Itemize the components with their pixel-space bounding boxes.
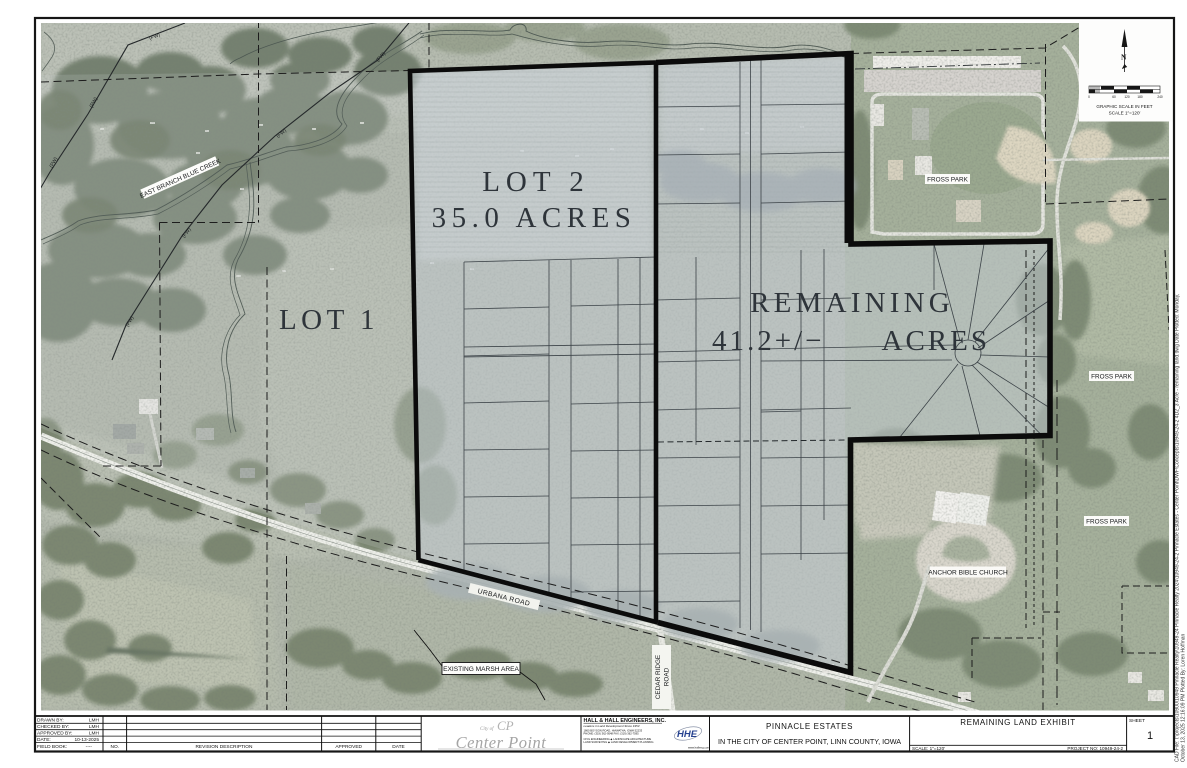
- svg-text:FROSS PARK: FROSS PARK: [927, 177, 968, 184]
- svg-text:DRAWN BY:: DRAWN BY:: [37, 718, 64, 724]
- svg-text:REVISION DESCRIPTION: REVISION DESCRIPTION: [195, 744, 253, 750]
- svg-text:ROAD: ROAD: [664, 667, 671, 686]
- svg-text:CHECKED BY:: CHECKED BY:: [37, 724, 69, 730]
- svg-text:HHE: HHE: [677, 729, 698, 740]
- svg-text:City of: City of: [480, 727, 494, 732]
- svg-text:October 13, 2025 12:16:09 PM: October 13, 2025 12:16:09 PM Plotted By:…: [1181, 633, 1187, 762]
- svg-text:APPROVED: APPROVED: [335, 744, 362, 750]
- svg-text:N: N: [1121, 53, 1127, 62]
- svg-text:REMAINING: REMAINING: [750, 287, 954, 319]
- svg-text:SCALE 1″=120′: SCALE 1″=120′: [1109, 111, 1141, 116]
- svg-text:LMH: LMH: [89, 718, 100, 724]
- svg-text:LMH: LMH: [89, 724, 100, 730]
- svg-text:FROSS PARK: FROSS PARK: [1086, 519, 1127, 526]
- svg-text:LOT 2: LOT 2: [482, 166, 590, 198]
- svg-text:PROJECT NO: 10949-24-2: PROJECT NO: 10949-24-2: [1067, 746, 1123, 751]
- svg-text:SHEET: SHEET: [1129, 718, 1145, 724]
- svg-text:ANCHOR BIBLE CHURCH: ANCHOR BIBLE CHURCH: [928, 570, 1008, 577]
- svg-text:IN THE CITY OF CENTER POINT, L: IN THE CITY OF CENTER POINT, LINN COUNTY…: [718, 737, 901, 746]
- svg-text:REMAINING LAND EXHIBIT: REMAINING LAND EXHIBIT: [960, 718, 1075, 727]
- svg-text:35.0 ACRES: 35.0 ACRES: [432, 202, 637, 234]
- svg-text:GRAPHIC SCALE IN FEET: GRAPHIC SCALE IN FEET: [1096, 104, 1152, 109]
- svg-text:LMH: LMH: [89, 731, 100, 737]
- svg-text:APPROVED BY:: APPROVED BY:: [37, 731, 72, 737]
- svg-text:FROSS PARK: FROSS PARK: [1091, 374, 1132, 381]
- svg-text:Leaders in Land Development Si: Leaders in Land Development Since 1953: [584, 724, 640, 728]
- svg-text:PHONE: (319) 362-9548 FAX: (3: PHONE: (319) 362-9548 FAX: (319) 362-759…: [584, 732, 640, 736]
- svg-text:www.halleng.com: www.halleng.com: [688, 745, 710, 749]
- svg-text:60: 60: [1112, 95, 1116, 99]
- svg-text:41.2+/−: 41.2+/−: [712, 325, 825, 357]
- svg-text:1: 1: [1147, 730, 1153, 742]
- svg-text:0: 0: [1088, 95, 1090, 99]
- svg-text:----: ----: [86, 745, 93, 750]
- svg-text:PINNACLE ESTATES: PINNACLE ESTATES: [766, 722, 853, 731]
- svg-text:DATE:: DATE:: [37, 737, 51, 743]
- svg-text:EXISTING MARSH AREA: EXISTING MARSH AREA: [443, 666, 519, 673]
- svg-text:120: 120: [1124, 95, 1130, 99]
- svg-text:CEDAR RIDGE: CEDAR RIDGE: [655, 655, 662, 699]
- svg-text:10-13-2025: 10-13-2025: [74, 737, 99, 743]
- svg-text:240: 240: [1157, 95, 1163, 99]
- svg-text:SCALE: 1″=120′: SCALE: 1″=120′: [912, 746, 945, 751]
- svg-text:ACRES: ACRES: [882, 325, 990, 357]
- svg-text:180: 180: [1137, 95, 1143, 99]
- svg-text:LOT 1: LOT 1: [279, 304, 379, 336]
- svg-text:CP: CP: [497, 718, 514, 733]
- svg-text:LAND SURVEYING ◆ LAND DEVELOPM: LAND SURVEYING ◆ LAND DEVELOPMENT PLANNI…: [584, 740, 654, 744]
- svg-text:FIELD BOOK:: FIELD BOOK:: [37, 744, 67, 750]
- svg-text:NO.: NO.: [111, 744, 120, 750]
- svg-text:DATE: DATE: [392, 744, 404, 750]
